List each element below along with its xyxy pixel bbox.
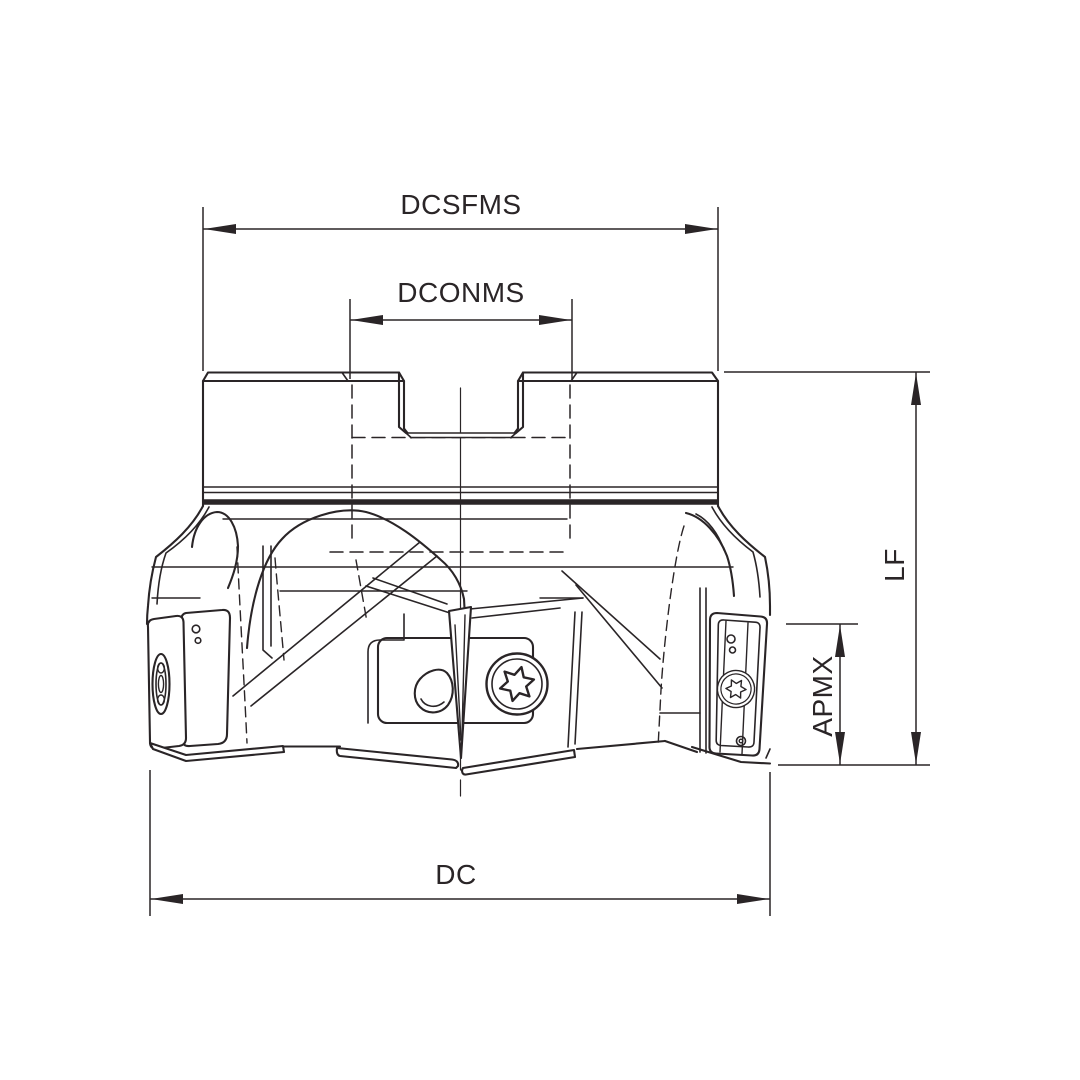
dimension-dconms: DCONMS [350,277,572,379]
top-face-left [203,373,404,382]
technical-drawing-page: DCSFMS DCONMS LF APMX DC [0,0,1080,1080]
left-insert [148,610,230,749]
face-mill-dimension-drawing: DCSFMS DCONMS LF APMX DC [0,0,1080,1080]
torx-screw-icon [487,654,548,715]
lf-label: LF [879,548,910,582]
wiper-edge-left [337,748,458,768]
arrowhead-icon [737,894,769,904]
apmx-label: APMX [807,655,838,736]
arrowhead-icon [204,224,236,234]
arrowhead-icon [835,625,845,657]
flange-curve-left [147,506,203,624]
arrowhead-icon [351,315,383,325]
dcsfms-label: DCSFMS [400,189,521,220]
right-insert [709,613,767,756]
screw-side-view [153,654,170,714]
arrowhead-icon [151,894,183,904]
flange-curve-right [718,506,770,615]
wiper-edge-right [462,750,575,775]
dc-label: DC [435,859,476,890]
dimension-apmx: APMX [786,624,858,765]
dconms-label: DCONMS [397,277,524,308]
cutter-body [147,373,770,625]
slot-floor [406,433,516,438]
arrowhead-icon [911,373,921,405]
pocket-step [368,614,404,723]
top-face-right [518,373,718,382]
arrowhead-icon [911,732,921,764]
cutter-head-gashes [152,510,734,753]
gash-arch-center [247,510,466,648]
arrowhead-icon [685,224,717,234]
center-insert [368,607,548,758]
arrowhead-icon [539,315,571,325]
